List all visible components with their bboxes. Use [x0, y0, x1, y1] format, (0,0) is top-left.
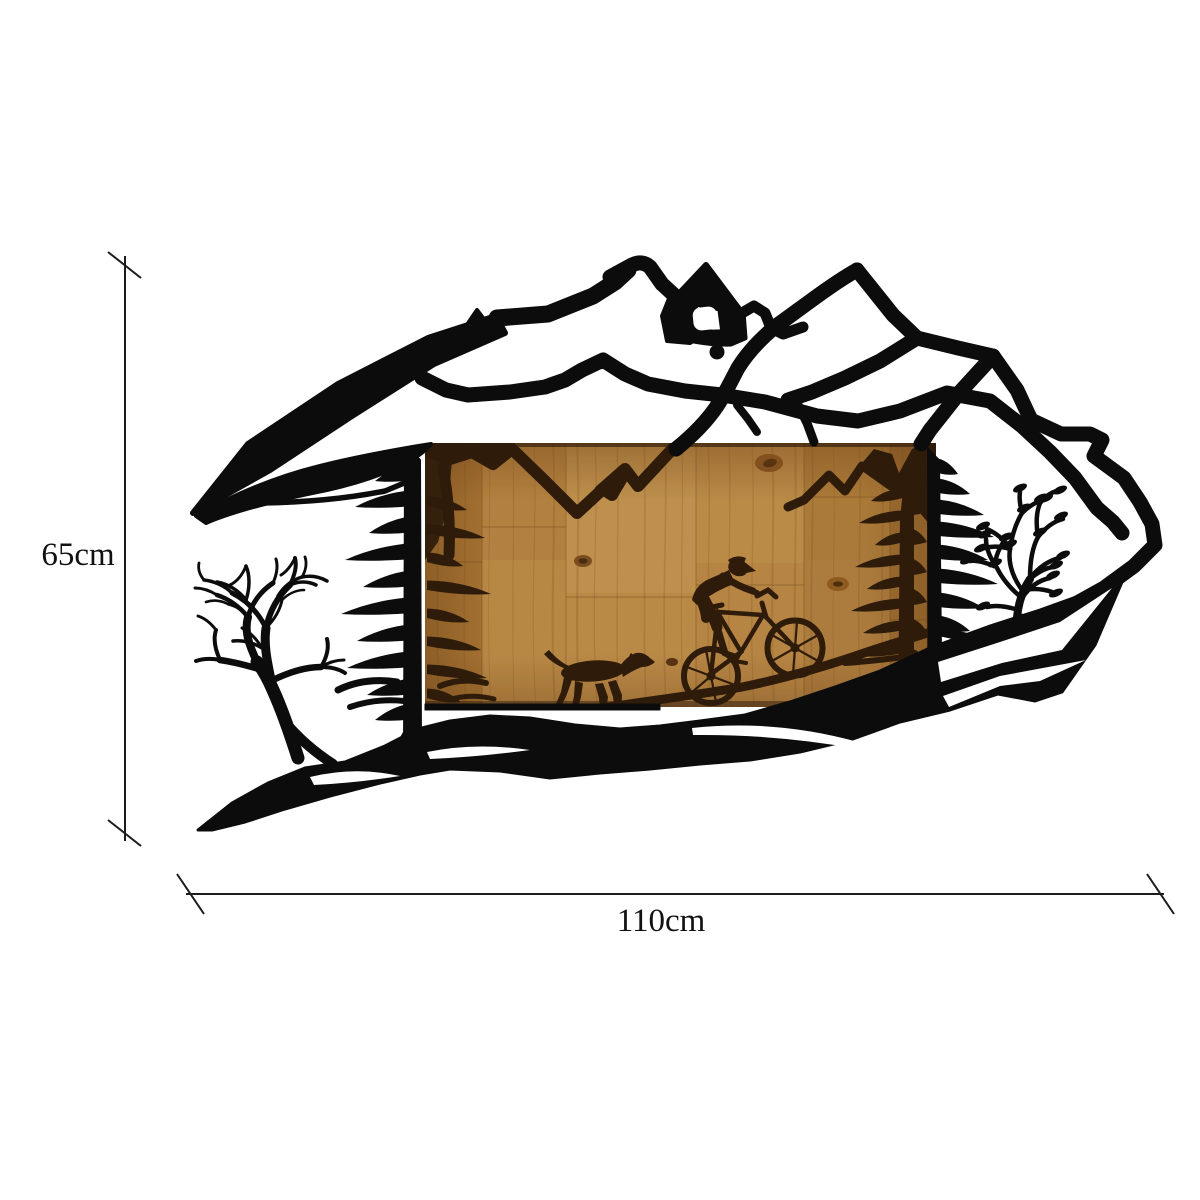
svg-text:110cm: 110cm [617, 903, 706, 939]
svg-text:65cm: 65cm [41, 537, 115, 573]
